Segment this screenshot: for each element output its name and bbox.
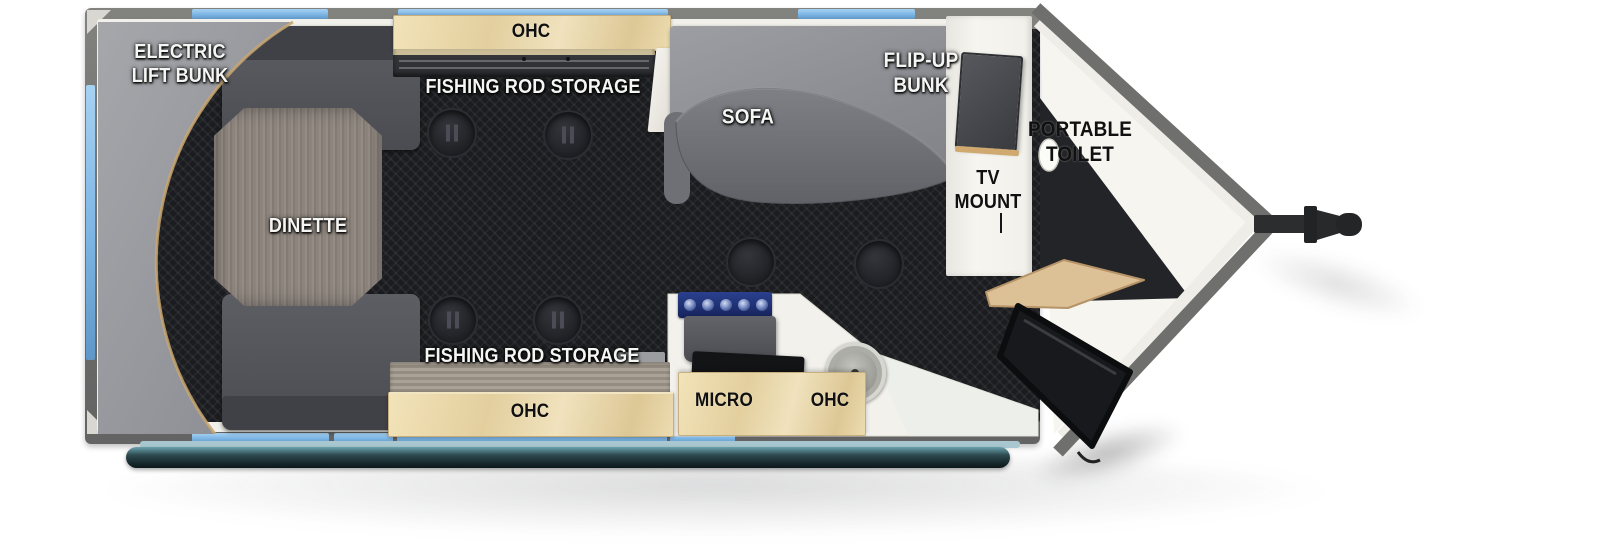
label-flip-up-bunk: FLIP-UP BUNK bbox=[884, 48, 959, 98]
rod-rack-screw bbox=[522, 57, 526, 61]
door-latch bbox=[1078, 452, 1100, 462]
floor-socket bbox=[543, 110, 593, 160]
roll-bar bbox=[126, 447, 1010, 468]
fishing-rod-rack-top bbox=[393, 49, 655, 77]
v-nose-front bbox=[930, 0, 1400, 480]
floorplan-diagram: ELECTRIC LIFT BUNK OHC FISHING ROD STORA… bbox=[0, 0, 1600, 544]
label-dinette: DINETTE bbox=[269, 214, 347, 238]
window-strip-top-3 bbox=[798, 9, 915, 19]
cooktop bbox=[678, 292, 772, 318]
window-strip-left bbox=[86, 85, 95, 360]
label-ohc-kitchen: OHC bbox=[811, 389, 850, 413]
label-line: TOILET bbox=[1046, 143, 1114, 166]
label-ohc-top: OHC bbox=[512, 20, 551, 44]
floor-socket bbox=[427, 108, 477, 158]
label-line: LIFT BUNK bbox=[132, 65, 229, 87]
label-line: FLIP-UP bbox=[884, 49, 959, 72]
label-fishing-rod-storage-bottom: FISHING ROD STORAGE bbox=[424, 344, 639, 368]
label-sofa: SOFA bbox=[722, 105, 774, 130]
label-ohc-bottom: OHC bbox=[511, 400, 550, 424]
label-micro: MICRO bbox=[695, 389, 753, 413]
floor-socket bbox=[533, 295, 583, 345]
floor-socket bbox=[726, 237, 776, 287]
label-line: BUNK bbox=[893, 74, 948, 97]
label-line: TV bbox=[976, 167, 999, 189]
label-line: ELECTRIC bbox=[134, 41, 225, 63]
label-portable-toilet: PORTABLE TOILET bbox=[1028, 117, 1132, 167]
label-line: MOUNT bbox=[955, 191, 1022, 213]
label-tv-mount: TV MOUNT bbox=[955, 166, 1022, 214]
floor-socket bbox=[428, 295, 478, 345]
label-electric-lift-bunk: ELECTRIC LIFT BUNK bbox=[132, 40, 229, 88]
rod-rack-screw bbox=[566, 57, 570, 61]
hitch-coupler bbox=[1254, 206, 1362, 243]
floor-socket bbox=[854, 239, 904, 289]
label-line: PORTABLE bbox=[1028, 118, 1132, 141]
label-fishing-rod-storage-top: FISHING ROD STORAGE bbox=[425, 75, 640, 99]
